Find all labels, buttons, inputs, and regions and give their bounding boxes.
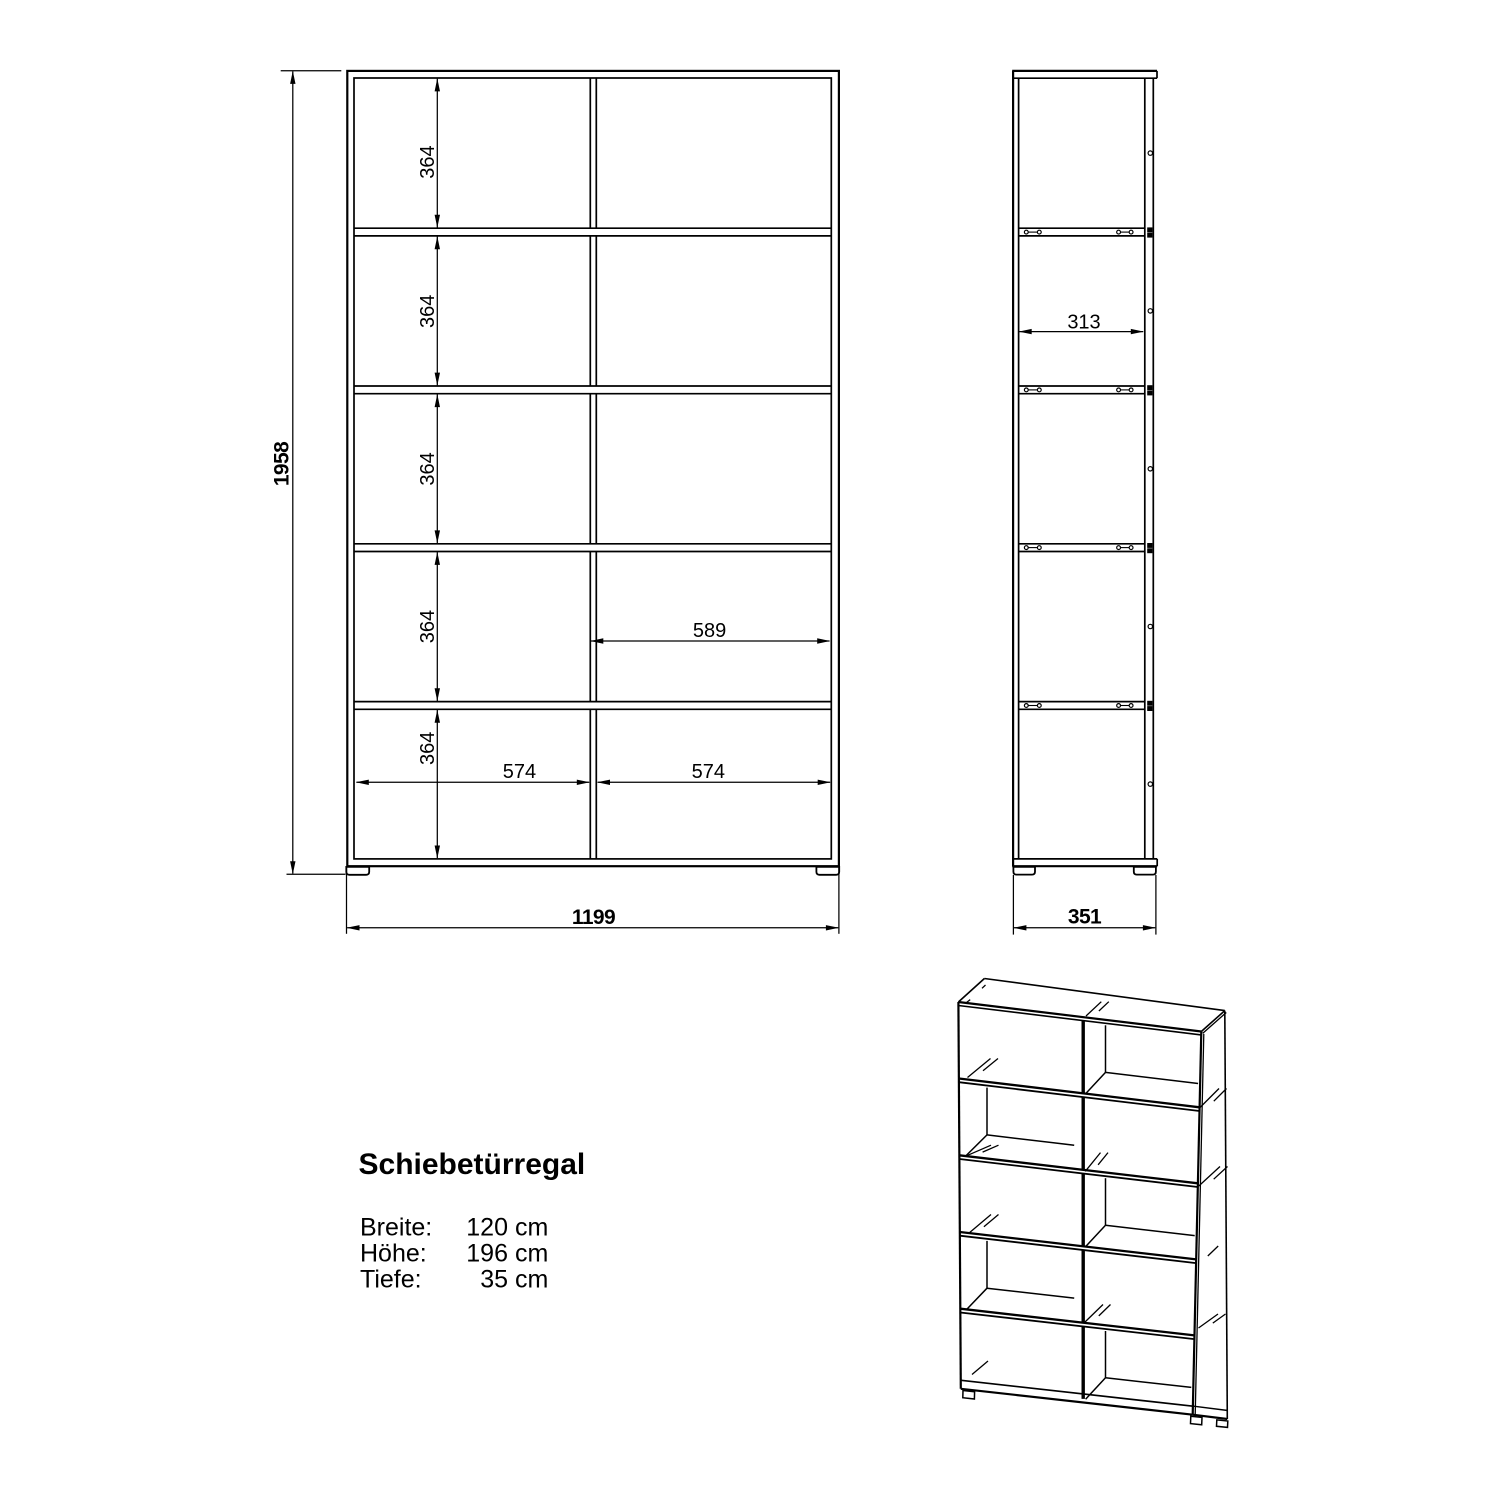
svg-text:364: 364 [417, 145, 439, 178]
svg-text:1958: 1958 [271, 441, 294, 486]
svg-text:Höhe:: Höhe: [360, 1240, 427, 1268]
svg-text:351: 351 [1068, 905, 1102, 928]
svg-text:364: 364 [417, 610, 439, 643]
svg-text:364: 364 [417, 295, 439, 328]
svg-text:364: 364 [417, 452, 439, 485]
svg-text:574: 574 [692, 761, 725, 783]
svg-text:Breite:: Breite: [360, 1214, 432, 1242]
svg-text:313: 313 [1067, 312, 1100, 334]
svg-text:cm: cm [515, 1214, 548, 1242]
svg-text:cm: cm [515, 1240, 548, 1268]
svg-text:196: 196 [466, 1240, 508, 1268]
svg-text:364: 364 [417, 732, 439, 765]
svg-text:35: 35 [480, 1266, 508, 1294]
svg-text:574: 574 [503, 761, 536, 783]
svg-text:589: 589 [693, 620, 726, 642]
svg-text:Tiefe:: Tiefe: [360, 1266, 422, 1294]
svg-text:cm: cm [515, 1266, 548, 1294]
svg-text:120: 120 [466, 1214, 508, 1242]
svg-text:1199: 1199 [572, 906, 615, 929]
svg-text:Schiebetürregal: Schiebetürregal [359, 1148, 586, 1181]
